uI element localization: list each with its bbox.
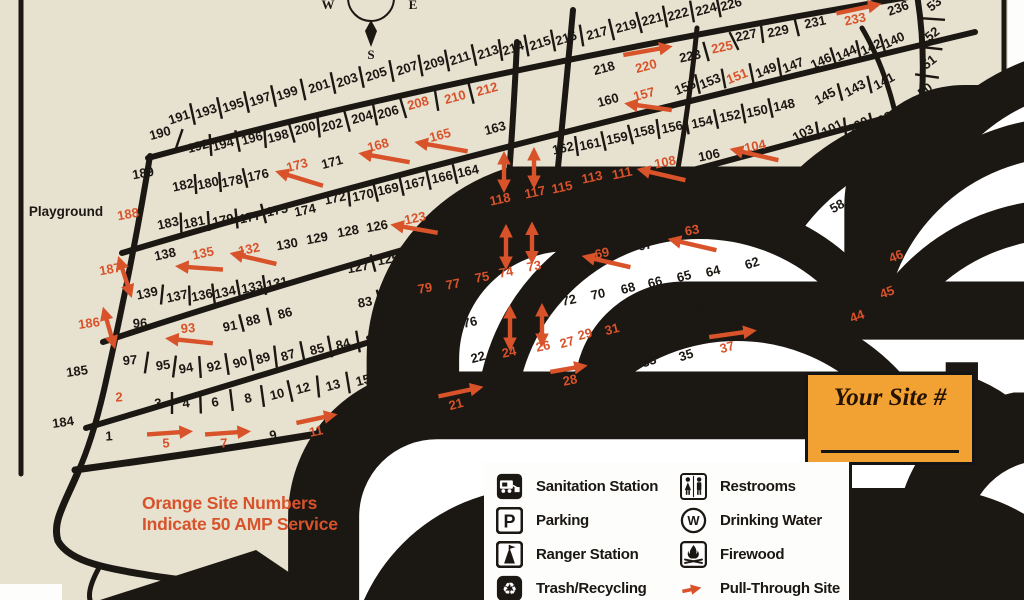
site-number: 175 <box>265 200 289 219</box>
site-number: 145 <box>812 84 838 107</box>
site-number: 207 <box>394 58 419 79</box>
site-number: 169 <box>376 179 400 198</box>
site-divider <box>200 392 201 414</box>
site-number: 13 <box>324 376 342 394</box>
legend-label: Drinking Water <box>720 512 822 529</box>
site-number: 210 <box>443 87 468 107</box>
site-number: 225 <box>710 37 734 56</box>
site-divider <box>435 89 439 111</box>
site-number: 229 <box>766 21 790 40</box>
site-number: 9 <box>268 427 278 443</box>
legend-pullthrough-icon <box>680 575 707 600</box>
site-divider <box>267 308 271 326</box>
site-number: 158 <box>632 121 656 140</box>
legend-label: Restrooms <box>720 478 796 495</box>
site-number: 92 <box>205 357 223 375</box>
legend-label: Pull-Through Site <box>720 580 840 597</box>
site-number: 165 <box>428 125 453 145</box>
your-site-blank-line <box>821 450 959 453</box>
site-number: 182 <box>171 175 195 194</box>
pull-through-arrow <box>147 432 189 435</box>
site-number: 195 <box>220 95 245 116</box>
site-number: 202 <box>320 115 345 135</box>
site-divider <box>230 389 233 411</box>
compass-east: E <box>409 0 418 12</box>
pull-through-arrow <box>279 172 323 185</box>
site-number: 148 <box>772 95 796 114</box>
site-divider <box>524 35 528 57</box>
site-number: 28 <box>561 371 578 389</box>
site-number: 227 <box>734 25 758 44</box>
site-number: 83 <box>357 293 374 310</box>
site-divider <box>761 23 763 43</box>
site-divider <box>288 380 293 401</box>
legend-column-left: Sanitation StationParkingRanger StationT… <box>496 473 680 600</box>
site-number: 212 <box>475 79 500 99</box>
site-number: 189 <box>131 164 155 183</box>
site-number: 1 <box>105 428 113 443</box>
site-number: 156 <box>660 117 684 136</box>
site-number: 137 <box>165 286 189 305</box>
site-divider <box>722 69 726 89</box>
site-number: 185 <box>65 362 89 380</box>
site-number: 213 <box>475 42 500 63</box>
site-number: 141 <box>871 69 897 92</box>
site-divider <box>921 18 945 20</box>
site-divider <box>389 60 393 82</box>
site-number: 5 <box>162 435 170 450</box>
site-number: 174 <box>293 200 318 219</box>
legend-item: Pull-Through Site <box>680 575 840 600</box>
site-number: 205 <box>363 64 388 85</box>
site-number: 78 <box>424 318 441 336</box>
site-number: 82 <box>364 330 381 348</box>
pull-through-arrow <box>205 432 247 435</box>
legend-label: Sanitation Station <box>536 478 658 495</box>
site-number: 76 <box>461 313 478 331</box>
site-number: 191 <box>166 107 191 128</box>
site-number: 203 <box>334 70 359 91</box>
site-number: 155 <box>672 76 698 98</box>
site-divider <box>794 17 799 36</box>
site-divider <box>173 356 176 378</box>
site-number: 132 <box>237 239 261 258</box>
site-number: 79 <box>417 279 434 296</box>
site-number: 183 <box>156 213 180 232</box>
site-number: 90 <box>231 353 249 372</box>
site-number: 219 <box>614 16 639 36</box>
legend: Sanitation StationParkingRanger StationT… <box>484 462 852 600</box>
legend-restrooms-icon <box>680 473 707 500</box>
site-number: 215 <box>527 33 552 54</box>
site-number: 172 <box>323 188 347 207</box>
site-number: 167 <box>403 173 427 192</box>
site-number: 136 <box>190 285 214 304</box>
site-number: 143 <box>842 76 868 99</box>
site-number: 236 <box>885 0 911 19</box>
your-site-box: Your Site # <box>805 372 975 465</box>
site-number: 216 <box>553 28 578 49</box>
site-divider <box>189 286 190 306</box>
compass-needle <box>365 20 377 47</box>
site-number: 166 <box>430 167 454 186</box>
site-divider <box>468 82 473 103</box>
legend-item: Parking <box>496 507 680 534</box>
compass: W E S <box>322 0 418 62</box>
site-number: 177 <box>238 207 262 226</box>
site-number: 12 <box>294 379 312 397</box>
site-number: 222 <box>666 4 691 24</box>
site-divider <box>915 74 939 77</box>
site-number: 157 <box>632 84 657 104</box>
site-number: 209 <box>421 53 446 74</box>
site-divider <box>264 126 266 148</box>
amp-service-note: Orange Site Numbers Indicate 50 AMP Serv… <box>142 493 338 536</box>
site-number: 221 <box>640 9 665 29</box>
site-number: 93 <box>180 320 196 336</box>
site-number: 192 <box>186 136 211 156</box>
legend-water-icon <box>680 507 707 534</box>
site-number: 151 <box>724 65 750 87</box>
site-number: 129 <box>305 229 329 248</box>
site-number: 80 <box>394 324 411 342</box>
site-number: 138 <box>153 244 177 263</box>
site-number: 70 <box>589 285 606 303</box>
legend-item: Firewood <box>680 541 840 568</box>
site-divider <box>225 353 228 375</box>
site-number: 218 <box>592 58 617 78</box>
site-number: 94 <box>178 359 196 376</box>
site-number: 204 <box>350 107 376 127</box>
legend-parking-icon <box>496 507 523 534</box>
legend-label: Trash/Recycling <box>536 580 647 597</box>
site-number: 53 <box>924 0 945 14</box>
site-number: 128 <box>336 222 360 241</box>
site-number: 63 <box>684 221 701 238</box>
pull-through-arrow <box>362 154 409 162</box>
site-number: 160 <box>596 90 621 110</box>
site-number: 154 <box>690 112 715 131</box>
site-divider <box>239 314 244 331</box>
site-divider <box>199 356 201 378</box>
site-number: 170 <box>351 185 375 204</box>
amp-note-line1: Orange Site Numbers <box>142 493 338 514</box>
site-number: 91 <box>222 317 239 334</box>
legend-label: Ranger Station <box>536 546 638 563</box>
your-site-label: Your Site # <box>808 384 972 412</box>
site-number: 87 <box>279 346 297 365</box>
site-number: 186 <box>77 314 101 332</box>
site-number: 220 <box>634 56 659 76</box>
site-number: 130 <box>275 235 299 254</box>
site-divider <box>181 213 182 233</box>
site-number: 199 <box>274 83 299 104</box>
site-number: 89 <box>254 349 272 368</box>
site-number: 173 <box>285 155 310 175</box>
legend-item: Drinking Water <box>680 507 840 534</box>
campground-map: W P ♻ <box>0 0 1024 600</box>
site-number: 193 <box>193 101 218 122</box>
legend-sanitation-icon <box>496 473 523 500</box>
site-number: 211 <box>448 48 473 69</box>
site-number: 71 <box>553 253 570 271</box>
site-number: 217 <box>585 23 610 43</box>
site-number: 127 <box>346 258 370 277</box>
site-number: 88 <box>244 311 262 329</box>
site-divider <box>145 352 148 374</box>
site-number: 97 <box>122 352 138 368</box>
legend-ranger-icon <box>496 541 523 568</box>
site-number: 26 <box>534 337 551 355</box>
pull-through-arrow <box>179 266 223 269</box>
site-divider <box>274 346 277 368</box>
legend-label: Parking <box>536 512 589 529</box>
map-label: Cabin <box>936 159 972 174</box>
compass-west: W <box>322 0 335 12</box>
site-number: 190 <box>148 123 173 143</box>
compass-south: S <box>367 47 374 62</box>
site-number: 231 <box>803 12 827 31</box>
site-number: 61 <box>735 216 752 233</box>
site-number: 6 <box>210 394 220 410</box>
site-divider <box>346 372 350 394</box>
site-number: 187 <box>98 260 122 279</box>
site-divider <box>580 25 584 47</box>
site-number: 81 <box>385 286 402 303</box>
site-number: 197 <box>247 89 272 110</box>
site-number: 206 <box>376 102 401 122</box>
legend-item: Trash/Recycling <box>496 575 680 600</box>
site-number: 139 <box>135 283 159 302</box>
site-divider <box>317 116 319 138</box>
site-number: 96 <box>132 315 147 331</box>
site-number: 180 <box>196 173 220 192</box>
site-number: 95 <box>155 357 171 374</box>
site-number: 179 <box>211 210 235 229</box>
site-number: 150 <box>745 101 769 120</box>
map-label: Playground <box>29 204 103 219</box>
site-divider <box>208 211 209 231</box>
legend-recycle-icon <box>496 575 523 600</box>
site-number: 163 <box>483 118 508 138</box>
pull-through-arrow <box>169 339 213 344</box>
site-number: 152 <box>718 106 742 125</box>
site-number: 69 <box>593 244 610 262</box>
site-number: 10 <box>268 385 286 403</box>
legend-label: Firewood <box>720 546 784 563</box>
site-number: 153 <box>697 70 723 92</box>
site-divider <box>703 42 708 61</box>
site-number: 131 <box>265 273 289 292</box>
site-number: 135 <box>191 243 215 262</box>
site-number: 67 <box>637 236 654 253</box>
compass-circle <box>348 0 394 21</box>
map-label: Mini <box>936 145 962 160</box>
site-number: 162 <box>551 138 575 157</box>
site-number: 75 <box>474 268 491 285</box>
site-number: 73 <box>526 257 543 274</box>
site-number: 164 <box>456 161 481 180</box>
site-divider <box>161 285 163 305</box>
site-number: 8 <box>243 390 253 406</box>
legend-item: Ranger Station <box>496 541 680 568</box>
legend-item: Restrooms <box>680 473 840 500</box>
site-number: 223 <box>678 46 702 65</box>
site-number: 161 <box>578 134 602 153</box>
site-number: 86 <box>276 304 294 322</box>
legend-item: Sanitation Station <box>496 473 680 500</box>
site-number: 77 <box>445 275 462 292</box>
site-number: 159 <box>605 128 629 147</box>
site-number: 3 <box>154 395 163 411</box>
site-number: 226 <box>719 0 744 14</box>
site-number: 176 <box>246 165 270 184</box>
site-number: 168 <box>366 135 391 155</box>
site-number: 2 <box>115 389 123 404</box>
road <box>89 566 100 600</box>
site-divider <box>778 58 782 78</box>
legend-firewood-icon <box>680 541 707 568</box>
site-number: 214 <box>500 37 526 58</box>
pull-through-arrow <box>418 143 467 152</box>
site-number: 201 <box>306 76 331 97</box>
site-number: 72 <box>560 291 577 309</box>
site-number: 233 <box>843 9 867 28</box>
amp-note-line2: Indicate 50 AMP Service <box>142 514 338 535</box>
site-number: 126 <box>365 217 389 236</box>
site-number: 178 <box>220 171 244 190</box>
legend-column-right: RestroomsDrinking WaterFirewoodPull-Thro… <box>680 473 840 600</box>
site-number: 224 <box>694 0 720 19</box>
site-divider <box>317 376 319 398</box>
site-number: 184 <box>51 413 75 431</box>
site-number: 171 <box>320 152 345 172</box>
site-divider <box>301 79 306 100</box>
site-divider <box>418 55 422 77</box>
site-divider <box>261 385 264 407</box>
site-number: 7 <box>220 435 229 451</box>
